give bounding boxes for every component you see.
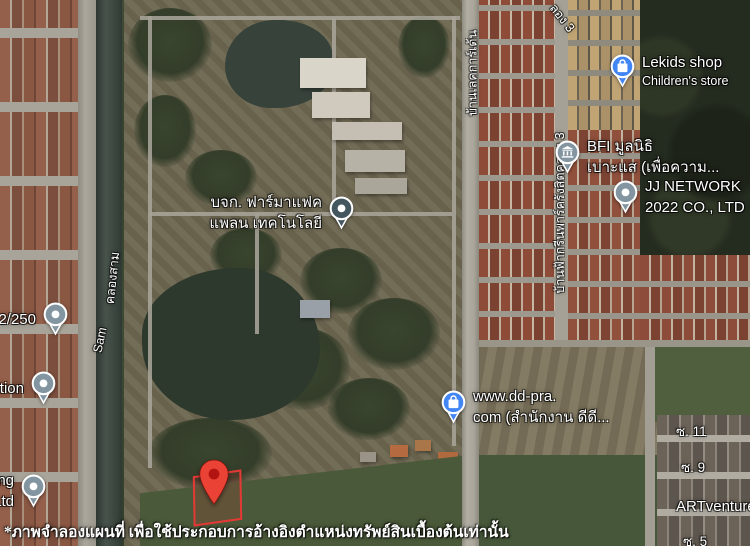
poi-label[interactable]: JJ NETWORK 2022 CO., LTD: [645, 176, 745, 219]
cross-road: [479, 340, 750, 347]
poi-label[interactable]: ution: [0, 378, 24, 399]
poi-2-250[interactable]: 2/250: [0, 302, 69, 337]
poi-label[interactable]: www.dd-pra. com (สำนักงาน ดีดี...: [473, 386, 610, 429]
place-pin-icon[interactable]: [30, 371, 57, 406]
estate-road: [140, 16, 460, 20]
poi-lekids-shop[interactable]: Lekids shop Children's store: [609, 52, 728, 91]
poi-dd-pra[interactable]: www.dd-pra. com (สำนักงาน ดีดี...: [440, 386, 610, 429]
building: [390, 445, 408, 457]
satellite-map[interactable]: Lekids shop Children's store BFI มูลนิธิ…: [0, 0, 750, 546]
poi-name: บจก. ฟาร์มาแฟค: [182, 192, 322, 213]
place-pin-icon[interactable]: [328, 196, 355, 231]
poi-ution[interactable]: ution: [0, 371, 57, 406]
side-road: [645, 347, 655, 546]
pond-lower: [142, 268, 320, 420]
map-disclaimer: *ภาพจำลองแผนที่ เพื่อใช้ประกอบการอ้างอิง…: [4, 519, 509, 544]
canal-side-road: [78, 0, 96, 546]
poi-label[interactable]: ng Ltd: [0, 470, 14, 513]
street-label-soi-11: ซ. 11: [676, 420, 707, 442]
poi-pharma-pack[interactable]: บจก. ฟาร์มาแฟค แพลน เทคโนโลยี: [182, 192, 355, 235]
estate-road: [148, 16, 152, 468]
property-marker[interactable]: [196, 459, 232, 512]
poi-name: 2/250: [0, 309, 36, 330]
street-label-soi-5: ซ. 5: [683, 530, 707, 546]
poi-bfi-foundation[interactable]: BFI มูลนิธิ เบาะแส (เพื่อความ...: [554, 136, 719, 179]
poi-name: ng: [0, 470, 14, 491]
poi-label[interactable]: Lekids shop Children's store: [642, 52, 728, 91]
poi-label[interactable]: BFI มูลนิธิ เบาะแส (เพื่อความ...: [587, 136, 719, 179]
bank-pin-icon[interactable]: [554, 140, 581, 175]
poi-name: www.dd-pra.: [473, 386, 610, 407]
building: [355, 178, 407, 194]
building: [300, 58, 366, 88]
poi-name-line2: Ltd: [0, 491, 14, 512]
red-pin-icon: [196, 459, 232, 507]
poi-name: Lekids shop: [642, 52, 728, 73]
tree-cluster: [348, 298, 440, 370]
shopping-bag-pin-icon[interactable]: [609, 54, 636, 89]
poi-name-line2: แพลน เทคโนโลยี: [182, 213, 322, 234]
shopping-bag-pin-icon[interactable]: [440, 390, 467, 425]
poi-jj-network[interactable]: JJ NETWORK 2022 CO., LTD: [612, 176, 745, 219]
place-pin-icon[interactable]: [612, 180, 639, 215]
street-label-artventure: ARTventure: [676, 498, 750, 515]
poi-ng-ltd[interactable]: ng Ltd: [0, 470, 47, 513]
poi-name: JJ NETWORK: [645, 176, 745, 197]
housing-block-red: [640, 255, 750, 345]
street-label-soi-9: ซ. 9: [681, 456, 705, 478]
building: [360, 452, 376, 462]
place-pin-icon[interactable]: [42, 302, 69, 337]
poi-name-line2: 2022 CO., LTD: [645, 197, 745, 218]
building: [332, 122, 402, 140]
building: [345, 150, 405, 172]
road-label-lake-garden: บ้านเลคการ์เด้น: [463, 1, 483, 146]
housing-block-red: [479, 0, 555, 345]
building: [300, 300, 330, 318]
poi-label[interactable]: 2/250: [0, 309, 36, 330]
tree-cluster: [398, 16, 450, 78]
place-pin-icon[interactable]: [20, 474, 47, 509]
poi-name: ution: [0, 378, 24, 399]
building: [312, 92, 370, 118]
tree-cluster: [134, 95, 196, 167]
poi-name-line2: com (สำนักงาน ดีดี...: [473, 407, 610, 428]
green-field-right: [655, 347, 750, 422]
building: [415, 440, 431, 451]
poi-category: Children's store: [642, 73, 728, 91]
poi-label[interactable]: บจก. ฟาร์มาแฟค แพลน เทคโนโลยี: [182, 192, 322, 235]
tree-cluster: [328, 378, 410, 440]
poi-name: BFI มูลนิธิ: [587, 136, 719, 157]
estate-road: [452, 16, 456, 446]
